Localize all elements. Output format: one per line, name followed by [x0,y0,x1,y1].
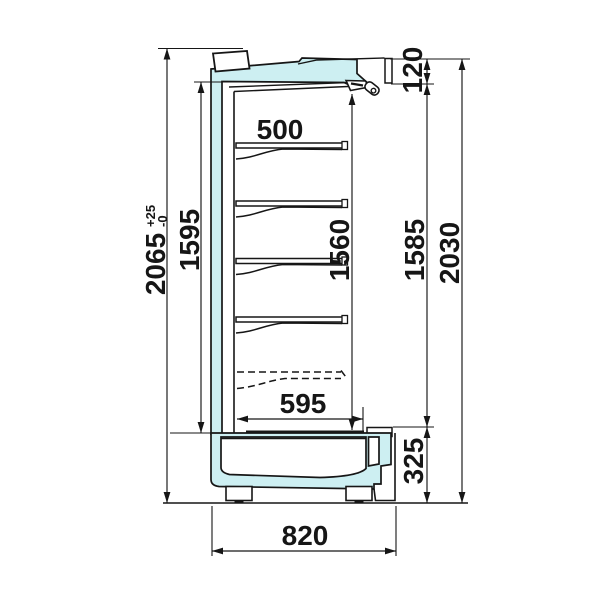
top-ballast-box [213,51,250,72]
dim-overall-height-label: 2065 [140,233,171,295]
dim-front-interior-height-label: 1560 [324,219,355,281]
leg-right [346,487,372,501]
shelf-bracket [236,207,342,217]
dim-canopy-front-height: 120 [397,47,428,94]
dim-front-opening-height: 1585 [399,84,430,427]
dim-body-height-label: 2030 [434,222,465,284]
dim-base-height: 325 [398,427,429,503]
shelf-board [236,201,346,206]
dashed-shelf-bracket [237,379,341,389]
dim-rear-interior-height-label: 1595 [174,209,205,271]
shelf-2 [236,200,348,218]
canopy-underside-line [229,83,348,88]
shelf-bracket [236,323,342,333]
dim-canopy-front-height-label: 120 [397,47,428,94]
technical-drawing-canvas: 2065 +25 -0 1595 500 1560 [0,0,600,600]
front-grill-bracket [385,59,392,84]
dim-bottom-shelf-depth-label: 595 [280,388,327,419]
shelf-4 [236,316,348,334]
shelf-end-cap [342,316,348,324]
dim-front-opening-height-label: 1585 [399,219,430,281]
shelf-end-cap [342,200,348,208]
lamp-icon [346,80,381,96]
shelf-bracket [236,149,342,159]
dim-bottom-shelf-depth: 595 [237,388,363,431]
leg-left [226,487,252,501]
base-tub [211,433,391,489]
interior-ceiling-line [234,87,348,92]
dim-shelf-depth-label: 500 [257,114,304,145]
dashed-shelf-board [237,371,346,377]
optional-shelf-dashed [237,371,346,389]
shelf-end-cap [342,142,348,150]
dim-body-height: 2030 [434,59,465,503]
dim-overall-height-tol-minus: -0 [155,215,170,227]
cabinet-section-drawing: 2065 +25 -0 1595 500 1560 [0,0,600,600]
shelf-board [236,317,346,322]
dim-overall-depth: 820 [212,506,396,556]
dim-overall-depth-label: 820 [282,520,329,551]
dim-base-height-label: 325 [398,438,429,485]
